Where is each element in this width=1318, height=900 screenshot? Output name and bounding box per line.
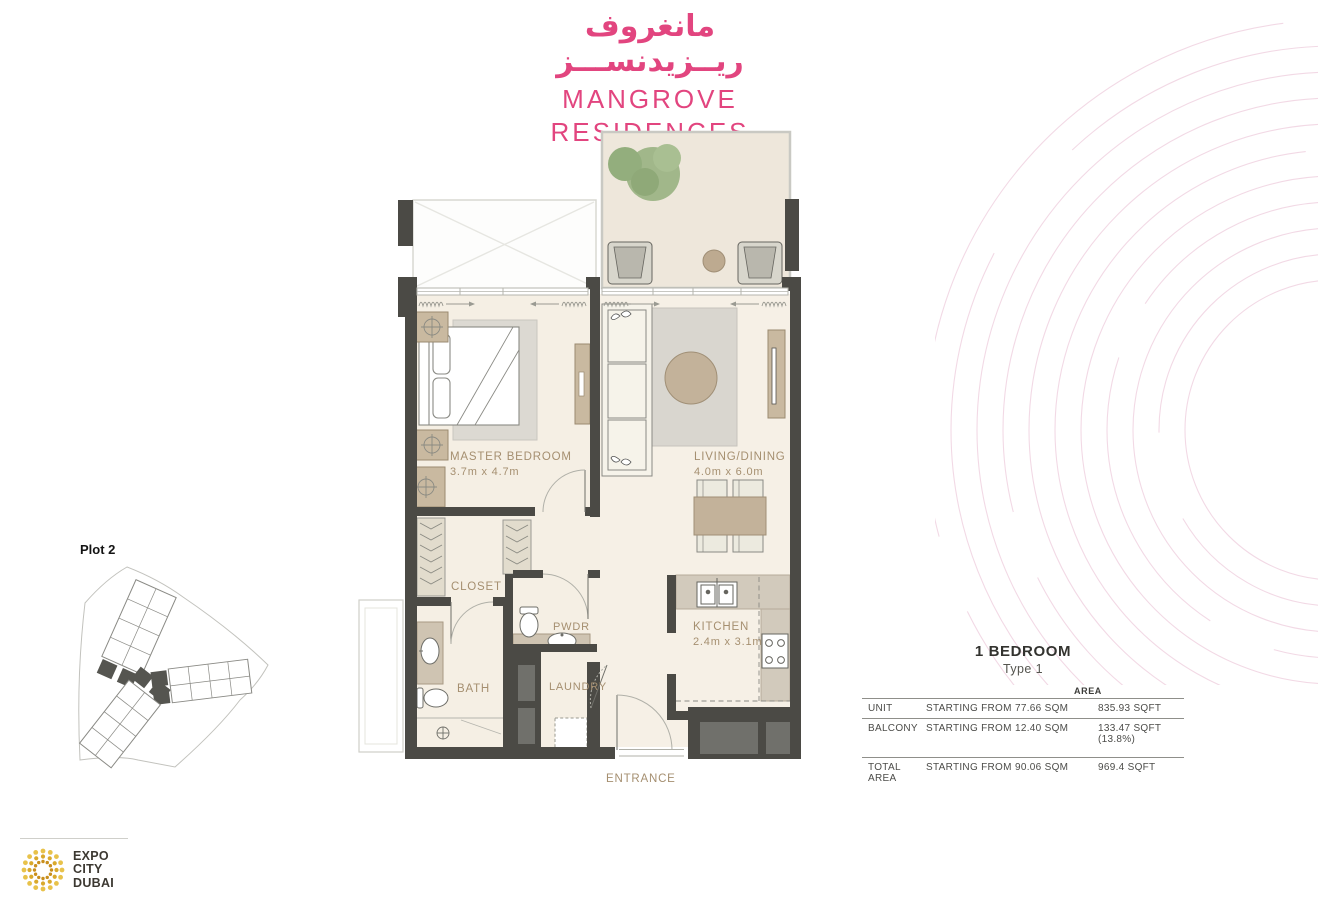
label-entrance: ENTRANCE [606, 773, 676, 785]
washer [555, 718, 587, 750]
shower-drain [437, 727, 449, 739]
label-closet: CLOSET [451, 581, 502, 593]
expo-city-dubai-logo: EXPO CITY DUBAI [20, 838, 128, 893]
expo-sunburst-icon [20, 847, 66, 893]
dining-chair [733, 535, 763, 552]
label-kitchen: KITCHEN [693, 621, 749, 633]
balcony-chair [738, 242, 782, 284]
bath-sink [421, 638, 439, 664]
row-sqm: 90.06 SQM [1015, 762, 1098, 784]
area-header: AREA [1074, 686, 1184, 696]
row-sqft: 969.4 SQFT [1098, 762, 1184, 784]
balcony-side-table [703, 250, 725, 272]
label-pwdr: PWDR [553, 621, 590, 633]
lightwell [359, 600, 403, 752]
label-master-bedroom: MASTER BEDROOM [450, 451, 572, 463]
row-sqft: 133.47 SQFT (13.8%) [1098, 723, 1184, 745]
expo-line1: EXPO [73, 850, 114, 864]
site-building-2 [150, 659, 251, 705]
label-bath: BATH [457, 683, 490, 695]
row-label: BALCONY [868, 723, 926, 745]
footer-rule [20, 838, 128, 839]
brand-name-line1: MANGROVE [500, 86, 800, 113]
label-master-bedroom-dims: 3.7m x 4.7m [450, 466, 519, 478]
bath-toilet [417, 688, 448, 708]
label-kitchen-dims: 2.4m x 3.1m [693, 636, 762, 648]
row-label: TOTAL AREA [868, 762, 926, 784]
expo-line2: CITY [73, 863, 114, 877]
unit-info-panel: 1 BEDROOM Type 1 AREA UNIT STARTING FROM… [862, 643, 1184, 788]
kitchen-sink [697, 578, 737, 607]
row-qualifier: STARTING FROM [926, 703, 1015, 714]
row-label: UNIT [868, 703, 926, 714]
dining-chair [733, 480, 763, 497]
row-sqm: 77.66 SQM [1015, 703, 1098, 714]
coffee-table [665, 352, 717, 404]
brand-arabic-line2: ريــزيدنســـز [500, 44, 800, 80]
row-sqm: 12.40 SQM [1015, 723, 1098, 745]
dining-chair [697, 535, 727, 552]
unit-subtitle: Type 1 [862, 662, 1184, 676]
table-row-balcony: BALCONY STARTING FROM 12.40 SQM 133.47 S… [862, 719, 1184, 749]
site-plan: Plot 2 [58, 542, 293, 777]
brand-arabic-line1: مانغروف [500, 10, 800, 44]
expo-logo-text: EXPO CITY DUBAI [73, 850, 114, 891]
table-row-unit: UNIT STARTING FROM 77.66 SQM 835.93 SQFT [862, 699, 1184, 718]
table-gap [862, 749, 1184, 757]
floor-plan: MASTER BEDROOM 3.7m x 4.7m LIVING/DINING… [353, 122, 803, 794]
row-qualifier: STARTING FROM [926, 762, 1015, 784]
unit-title: 1 BEDROOM [862, 643, 1184, 660]
table-row-total: TOTAL AREA STARTING FROM 90.06 SQM 969.4… [862, 758, 1184, 788]
wardrobe-right [503, 520, 531, 574]
pwdr-toilet [520, 607, 538, 637]
sofa [602, 304, 652, 476]
site-plan-map [58, 559, 293, 774]
stove [762, 634, 788, 668]
tv-unit [768, 330, 785, 418]
decorative-arcs [935, 0, 1318, 685]
site-plan-label: Plot 2 [80, 542, 293, 557]
balcony-chair [608, 242, 652, 284]
floorplan-brochure-page: مانغروف ريــزيدنســـز MANGROVE RESIDENCE… [0, 0, 1318, 900]
label-living-dining-dims: 4.0m x 6.0m [694, 466, 763, 478]
dining-table [694, 497, 766, 535]
expo-line3: DUBAI [73, 877, 114, 891]
tv [772, 348, 776, 404]
dining-chair [697, 480, 727, 497]
row-qualifier: STARTING FROM [926, 723, 1015, 745]
row-sqft: 835.93 SQFT [1098, 703, 1184, 714]
label-laundry: LAUNDRY [549, 681, 607, 693]
label-living-dining: LIVING/DINING [694, 451, 786, 463]
